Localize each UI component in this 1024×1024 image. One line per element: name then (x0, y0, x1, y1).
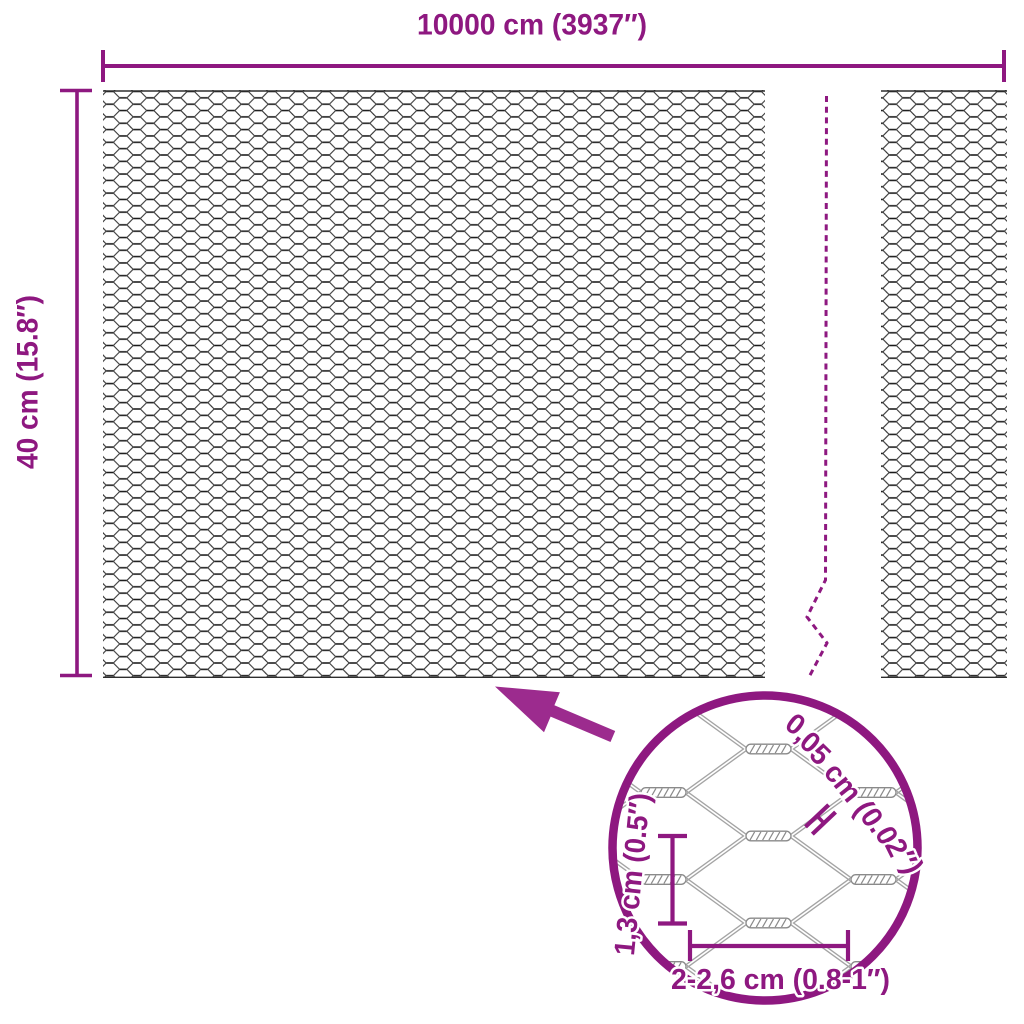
svg-text:2-2,6 cm (0.8-1″): 2-2,6 cm (0.8-1″) (671, 964, 890, 996)
svg-text:10000 cm (3937″): 10000 cm (3937″) (417, 9, 647, 42)
svg-text:40 cm (15.8″): 40 cm (15.8″) (12, 295, 45, 469)
